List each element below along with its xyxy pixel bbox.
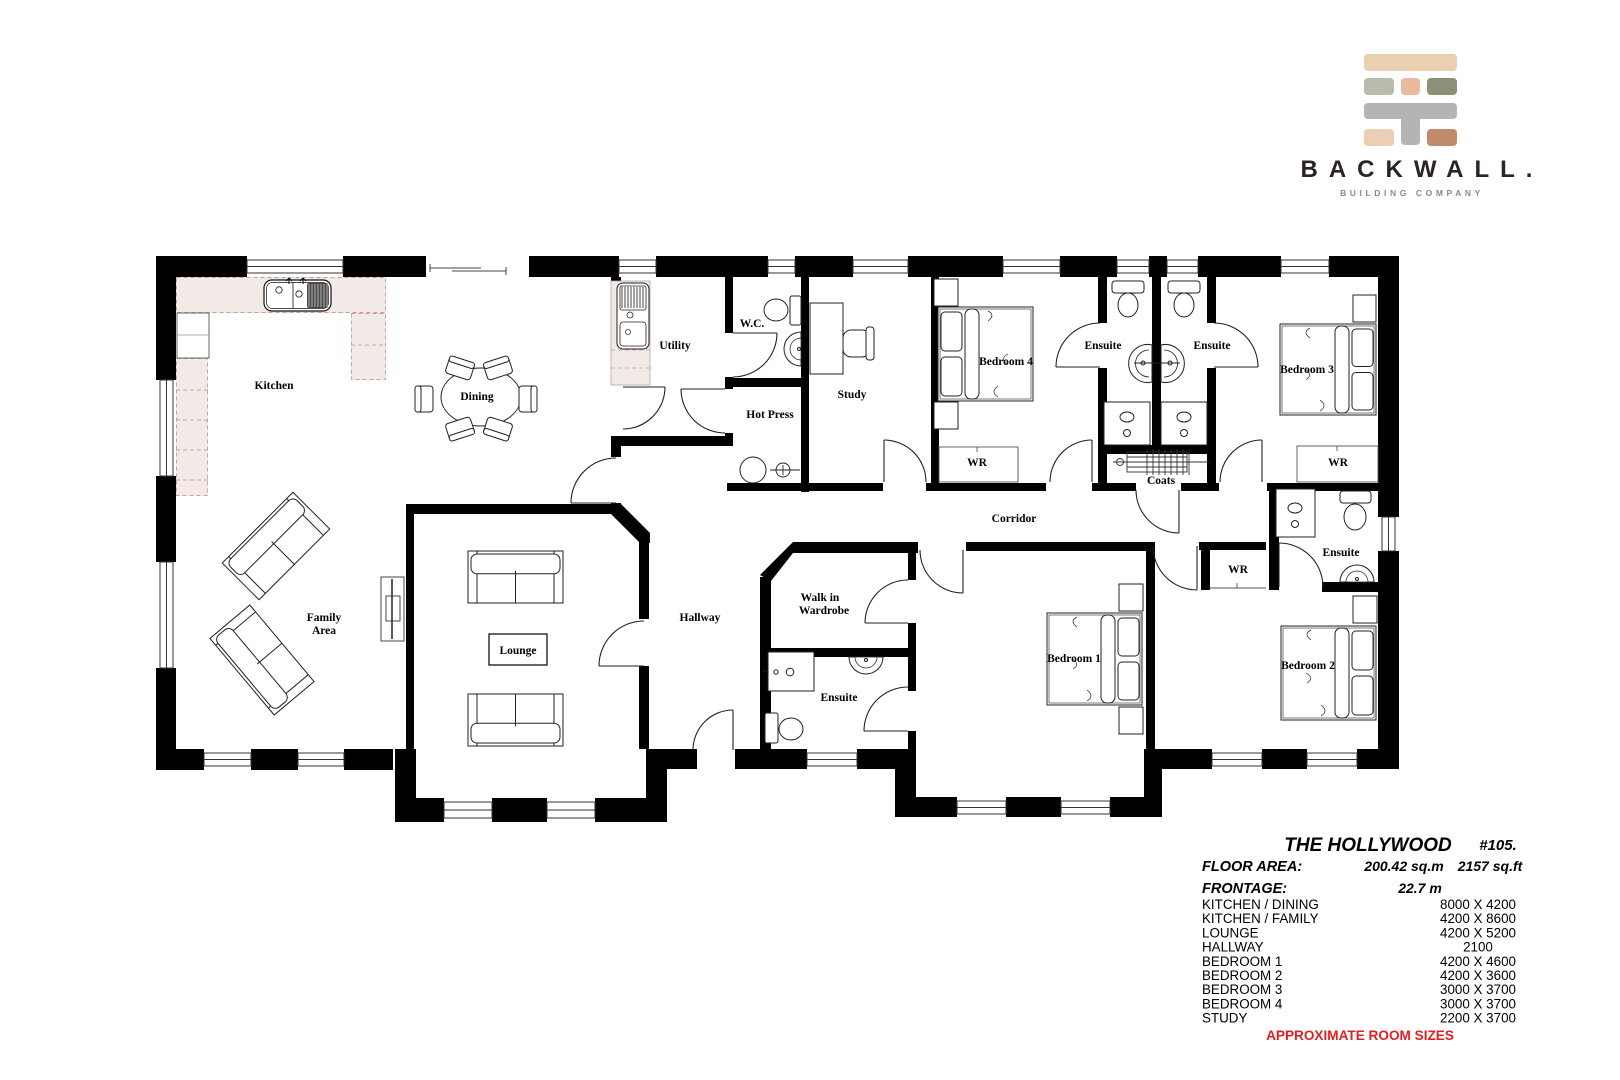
svg-text:BEDROOM 4: BEDROOM 4 — [1202, 996, 1283, 1011]
svg-text:3000 X 3700: 3000 X 3700 — [1440, 982, 1516, 997]
svg-text:Ensuite: Ensuite — [820, 692, 857, 704]
svg-text:BEDROOM 1: BEDROOM 1 — [1202, 954, 1282, 969]
svg-text:BUILDING COMPANY: BUILDING COMPANY — [1340, 188, 1484, 198]
svg-text:FRONTAGE:: FRONTAGE: — [1202, 881, 1287, 897]
svg-text:Hot Press: Hot Press — [746, 409, 794, 421]
svg-text:HALLWAY: HALLWAY — [1202, 940, 1264, 955]
svg-text:THE HOLLYWOOD: THE HOLLYWOOD — [1284, 835, 1452, 856]
svg-text:#105.: #105. — [1479, 837, 1517, 854]
svg-text:Bedroom 3: Bedroom 3 — [1280, 364, 1334, 376]
svg-text:4200 X 4600: 4200 X 4600 — [1440, 954, 1516, 969]
svg-text:KITCHEN / DINING: KITCHEN / DINING — [1202, 897, 1319, 912]
svg-text:Bedroom 1: Bedroom 1 — [1047, 653, 1101, 665]
svg-text:2100: 2100 — [1463, 940, 1493, 955]
svg-text:Bedroom 4: Bedroom 4 — [979, 356, 1033, 368]
svg-text:LOUNGE: LOUNGE — [1202, 925, 1259, 940]
svg-text:Hallway: Hallway — [680, 612, 721, 624]
svg-text:BEDROOM 2: BEDROOM 2 — [1202, 968, 1282, 983]
svg-text:BACKWALL.: BACKWALL. — [1301, 156, 1544, 183]
svg-text:Family: Family — [307, 612, 342, 624]
svg-text:2200 X 3700: 2200 X 3700 — [1440, 1011, 1516, 1026]
svg-text:4200 X 3600: 4200 X 3600 — [1440, 968, 1516, 983]
svg-text:Coats: Coats — [1147, 475, 1176, 487]
svg-text:22.7 m: 22.7 m — [1397, 880, 1442, 896]
svg-text:Utility: Utility — [659, 340, 691, 352]
svg-text:WR: WR — [1228, 564, 1249, 576]
svg-text:KITCHEN / FAMILY: KITCHEN / FAMILY — [1202, 911, 1319, 926]
svg-text:Bedroom 2: Bedroom 2 — [1281, 660, 1335, 672]
svg-text:Ensuite: Ensuite — [1084, 340, 1121, 352]
svg-text:200.42 sq.m: 200.42 sq.m — [1363, 858, 1443, 874]
svg-text:Corridor: Corridor — [992, 513, 1037, 525]
svg-text:Kitchen: Kitchen — [255, 380, 295, 392]
svg-text:BEDROOM 3: BEDROOM 3 — [1202, 982, 1282, 997]
svg-text:WR: WR — [967, 457, 988, 469]
svg-text:WR: WR — [1328, 457, 1349, 469]
svg-text:FLOOR AREA:: FLOOR AREA: — [1202, 859, 1302, 875]
svg-text:APPROXIMATE ROOM SIZES: APPROXIMATE ROOM SIZES — [1266, 1028, 1454, 1043]
svg-text:8000 X 4200: 8000 X 4200 — [1440, 897, 1516, 912]
svg-text:Wardrobe: Wardrobe — [799, 605, 849, 617]
svg-text:4200 X 5200: 4200 X 5200 — [1440, 925, 1516, 940]
svg-text:4200 X 8600: 4200 X 8600 — [1440, 911, 1516, 926]
svg-text:Ensuite: Ensuite — [1193, 340, 1230, 352]
svg-text:Walk in: Walk in — [801, 592, 840, 604]
svg-text:W.C.: W.C. — [740, 318, 765, 330]
svg-text:Area: Area — [312, 625, 336, 637]
svg-text:Dining: Dining — [460, 391, 493, 403]
svg-text:Ensuite: Ensuite — [1322, 547, 1359, 559]
svg-text:Lounge: Lounge — [499, 645, 536, 657]
svg-text:STUDY: STUDY — [1202, 1011, 1247, 1026]
svg-text:Study: Study — [838, 389, 867, 401]
svg-text:2157 sq.ft: 2157 sq.ft — [1457, 858, 1524, 874]
svg-text:3000 X 3700: 3000 X 3700 — [1440, 996, 1516, 1011]
